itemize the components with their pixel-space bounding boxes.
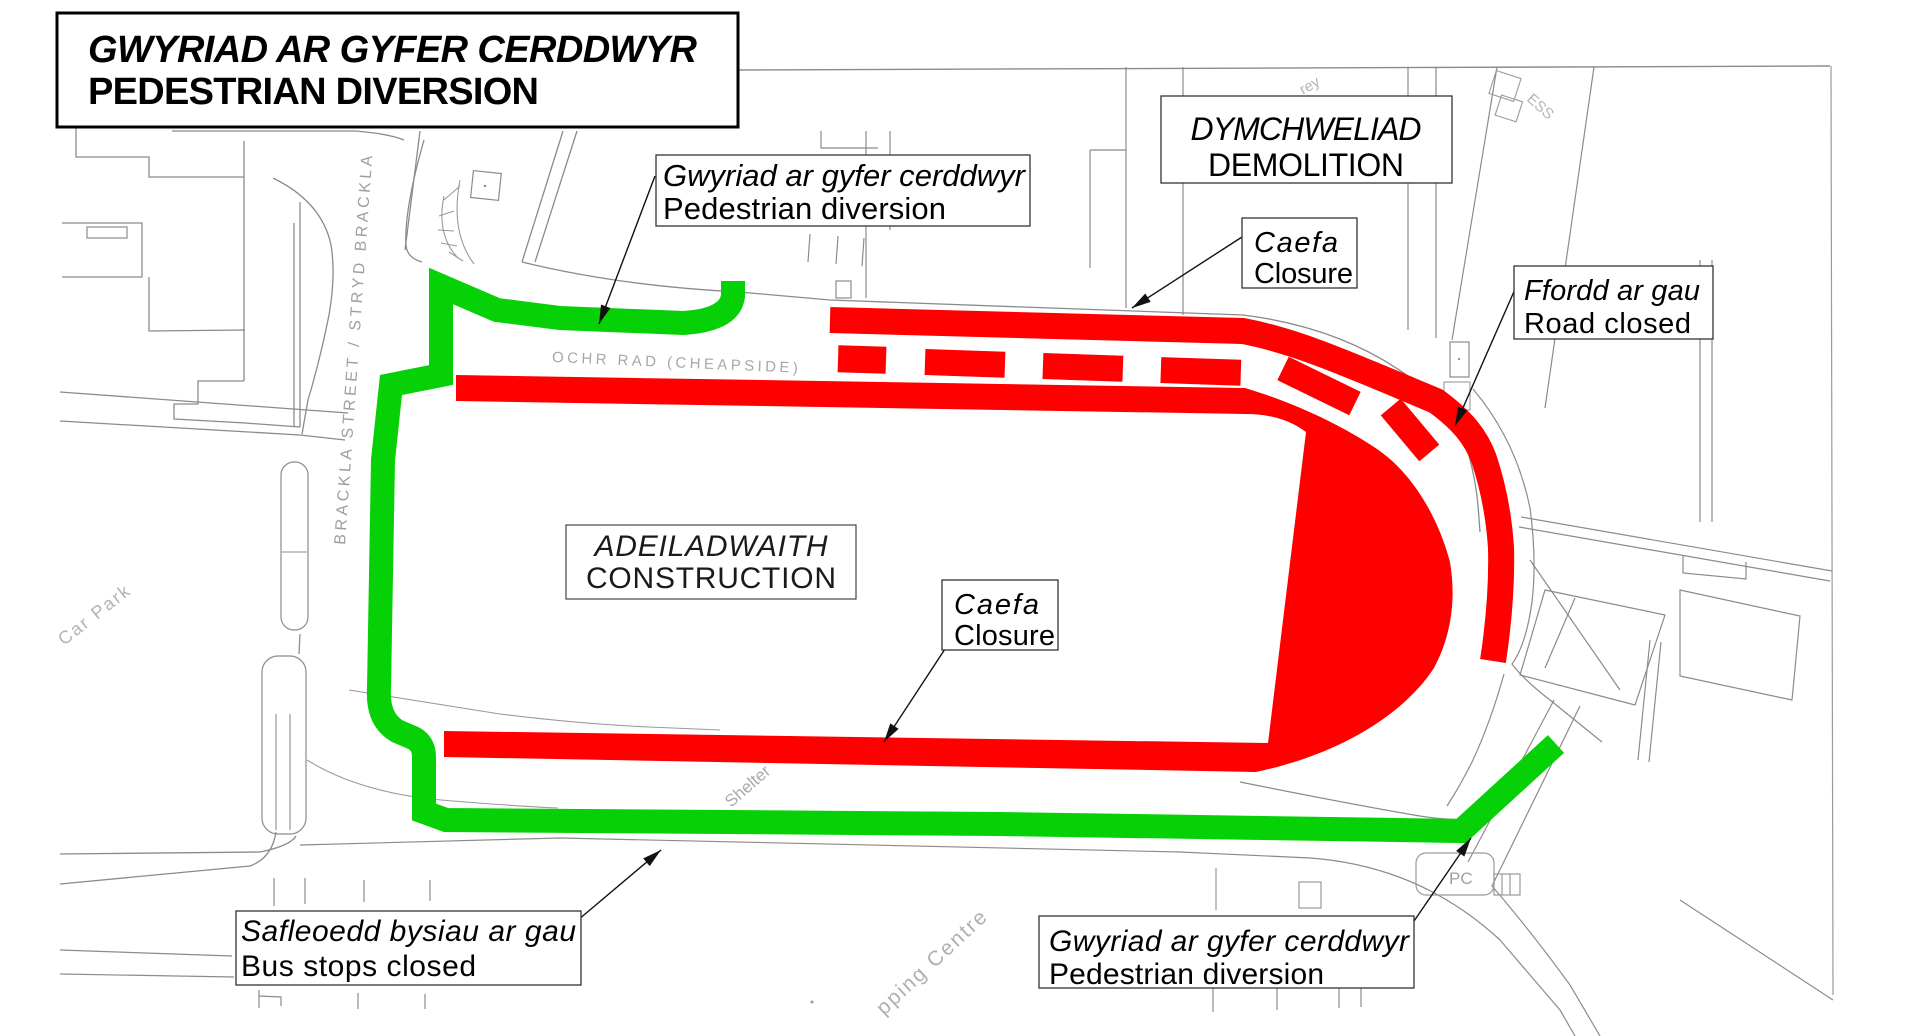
svg-text:Bus stops closed: Bus stops closed <box>241 950 476 983</box>
svg-text:Road closed: Road closed <box>1524 308 1691 340</box>
svg-text:Caefa: Caefa <box>954 589 1039 621</box>
svg-text:Safleoedd bysiau ar gau: Safleoedd bysiau ar gau <box>241 915 576 948</box>
svg-text:DEMOLITION: DEMOLITION <box>1208 147 1404 183</box>
svg-text:PEDESTRIAN DIVERSION: PEDESTRIAN DIVERSION <box>88 71 539 113</box>
svg-text:Closure: Closure <box>954 620 1055 652</box>
svg-text:Caefa: Caefa <box>1254 227 1338 259</box>
svg-text:Pedestrian diversion: Pedestrian diversion <box>663 191 946 226</box>
svg-text:DYMCHWELIAD: DYMCHWELIAD <box>1191 111 1422 147</box>
svg-text:Gwyriad ar gyfer cerddwyr: Gwyriad ar gyfer cerddwyr <box>1049 925 1410 958</box>
svg-text:Gwyriad ar gyfer cerddwyr: Gwyriad ar gyfer cerddwyr <box>663 158 1027 193</box>
svg-text:ADEILADWAITH: ADEILADWAITH <box>593 530 828 563</box>
svg-text:PC: PC <box>1449 869 1473 888</box>
svg-text:Pedestrian diversion: Pedestrian diversion <box>1049 958 1324 991</box>
svg-text:Closure: Closure <box>1254 258 1353 290</box>
svg-text:CONSTRUCTION: CONSTRUCTION <box>586 562 836 595</box>
svg-text:GWYRIAD AR GYFER CERDDWYR: GWYRIAD AR GYFER CERDDWYR <box>88 29 698 71</box>
svg-text:Ffordd ar gau: Ffordd ar gau <box>1524 275 1700 307</box>
